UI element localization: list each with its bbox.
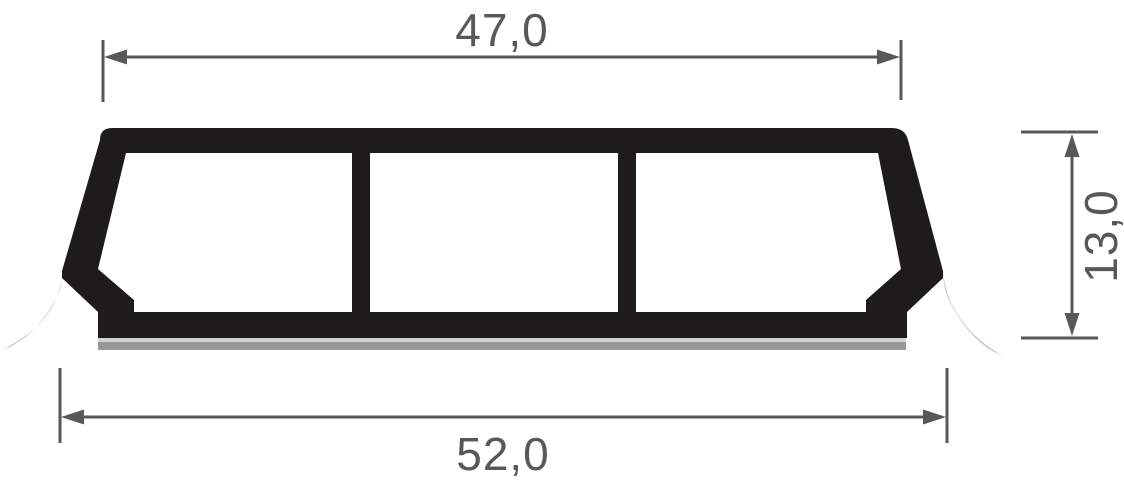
chamber-middle	[370, 153, 618, 312]
height-label: 13,0	[1075, 189, 1124, 283]
chamber-left	[98, 153, 352, 312]
bottom-width-arrowhead-left	[61, 410, 84, 425]
adhesive-tape	[98, 338, 906, 350]
height-arrowhead-bottom	[1065, 313, 1080, 336]
height-arrowhead-top	[1065, 134, 1080, 157]
top-width-arrowhead-right	[877, 50, 900, 65]
adhesive-tape-light-layer	[98, 338, 906, 342]
height-dimension: 13,0	[1021, 132, 1124, 338]
top-width-label: 47,0	[455, 4, 549, 56]
right-flap	[943, 268, 1003, 356]
bottom-width-label: 52,0	[456, 428, 550, 480]
bottom-width-arrowhead-right	[923, 410, 946, 425]
adhesive-tape-dark-layer	[98, 342, 906, 350]
chamber-right	[636, 153, 901, 312]
bottom-width-dimension: 52,0	[60, 368, 947, 480]
top-width-arrowhead-left	[104, 50, 127, 65]
technical-drawing-canvas: 47,0 52,0 13,0	[0, 0, 1124, 480]
top-width-dimension: 47,0	[103, 4, 901, 102]
left-flap	[2, 268, 62, 350]
